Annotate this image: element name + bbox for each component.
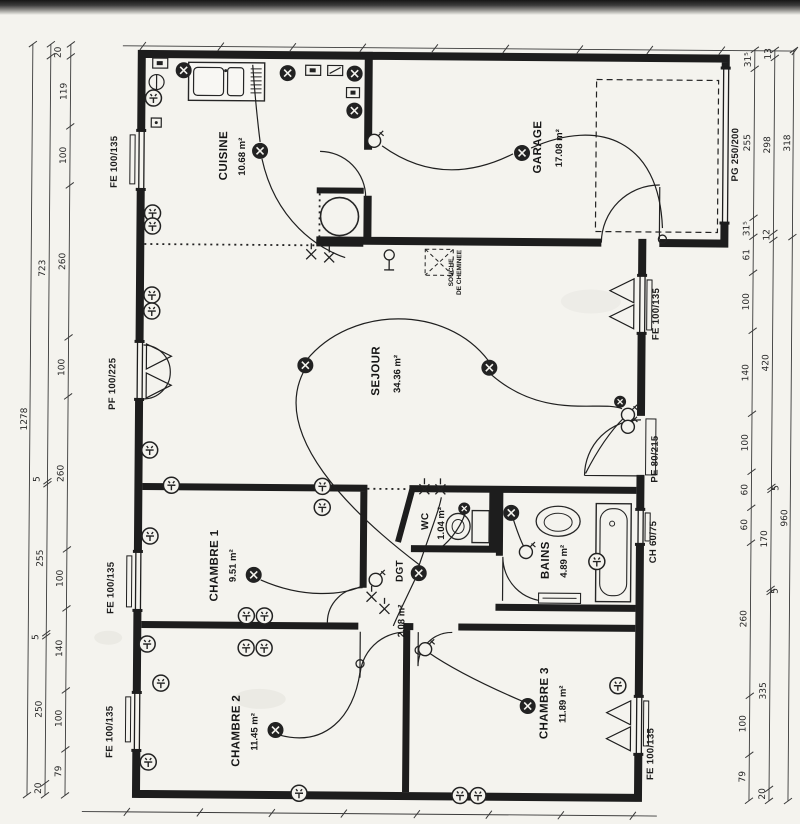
dim-label: 79	[54, 765, 64, 777]
dim-label: 100	[741, 434, 751, 452]
socket-symbol	[142, 442, 158, 458]
dim-label: 61	[742, 249, 752, 261]
chimney-label-line2: DE CHEMINEE	[456, 249, 463, 295]
door-cross-mark	[379, 598, 389, 614]
dim-label: 260	[56, 464, 66, 482]
dim-label: 298	[763, 136, 773, 154]
light-symbol	[252, 143, 268, 159]
light-symbol	[176, 62, 192, 78]
dim-label: 250	[35, 700, 45, 718]
socket-symbol	[452, 787, 468, 803]
room-name-chambre3: CHAMBRE 3	[538, 667, 551, 739]
dim-label: 100	[55, 709, 65, 727]
dim-label: 5	[771, 485, 781, 491]
room-name-cuisine: CUISINE	[218, 131, 230, 181]
window-label-left-1: FE 100/135	[109, 135, 120, 188]
room-area-wc: 1.04 m²	[436, 507, 447, 540]
drainer-grooves	[251, 69, 262, 93]
dim-label: 79	[738, 771, 748, 783]
room-name-sejour: SEJOUR	[370, 346, 382, 396]
room-labels: CUISINE 10.68 m² GARAGE 17.08 m² SEJOUR …	[207, 118, 573, 769]
water-heater	[320, 197, 358, 235]
switch-symbol	[519, 542, 535, 559]
dim-label: 255	[36, 550, 46, 567]
socket-symbol	[314, 478, 330, 494]
dim-label: 260	[739, 610, 749, 628]
light-symbol	[520, 698, 536, 714]
scan-noise	[94, 286, 621, 712]
light-symbol	[246, 567, 262, 583]
dim-label: 170	[760, 530, 770, 548]
dim-label: 60	[740, 519, 750, 531]
switch-symbol	[419, 639, 435, 656]
washbasin-inner	[544, 513, 572, 531]
window-label-left-2: PF 100/225	[107, 357, 118, 410]
socket-symbol	[144, 218, 160, 234]
socket-symbol	[238, 640, 254, 656]
door-cross-mark	[367, 586, 377, 602]
room-area-dgt: 2.08 m²	[396, 605, 407, 638]
dim-label: 13	[764, 48, 774, 60]
wall-light-symbol	[614, 396, 626, 408]
dim-label: 5	[771, 588, 781, 594]
room-area-chambre1: 9.51 m²	[228, 549, 239, 582]
dim-label: 335	[759, 682, 769, 699]
dim-label: 119	[59, 82, 69, 100]
socket-symbol	[140, 754, 156, 770]
dim-label: 20	[54, 46, 64, 58]
bathtub-drain	[610, 521, 615, 526]
window-label-right-4: FE 100/135	[645, 727, 656, 780]
socket-symbol	[144, 287, 160, 303]
shutter-boxes	[125, 135, 653, 746]
socket-symbol	[153, 675, 169, 691]
dimension-ticks-right	[745, 47, 798, 804]
socket-symbol	[610, 678, 626, 694]
light-symbol	[503, 505, 519, 521]
dim-label: 255	[743, 134, 753, 151]
socket-symbol	[589, 553, 605, 569]
electrical-wiring	[247, 65, 663, 741]
socket-symbol	[470, 788, 486, 804]
switch-symbol	[369, 570, 385, 587]
socket-symbol	[314, 499, 330, 515]
room-area-chambre2: 11.45 m²	[249, 713, 260, 751]
light-symbol	[411, 565, 427, 581]
light-symbol	[481, 360, 497, 376]
door-label-right-2: PE 80/215	[649, 435, 660, 483]
room-area-chambre3: 11.89 m²	[558, 685, 569, 723]
dim-label: 960	[780, 509, 790, 527]
floor-plan-drawing: CUISINE 10.68 m² GARAGE 17.08 m² SEJOUR …	[0, 0, 800, 824]
dim-label: 5	[32, 476, 42, 482]
light-symbol	[280, 65, 296, 81]
scanned-floor-plan-page: CUISINE 10.68 m² GARAGE 17.08 m² SEJOUR …	[0, 0, 800, 824]
chimney-label-line1: SOUCHE	[448, 258, 455, 287]
toilet-tank	[472, 511, 489, 543]
room-area-garage: 17.08 m²	[554, 129, 565, 167]
wiring-curves	[247, 65, 663, 741]
dim-label: 12	[762, 229, 772, 241]
window-label-right-3: CH 60/75	[648, 520, 659, 563]
socket-symbol	[142, 528, 158, 544]
room-name-chambre1: CHAMBRE 1	[209, 529, 222, 601]
wall-light-symbol	[458, 502, 470, 514]
dim-label: 260	[58, 252, 68, 270]
light-symbol	[347, 66, 363, 82]
wc-angled-wall	[398, 489, 412, 542]
dim-label: 31⁵	[744, 52, 754, 68]
socket-symbol	[144, 303, 160, 319]
light-symbol	[267, 722, 283, 738]
socket-symbol	[238, 608, 254, 624]
dim-label: 100	[57, 358, 67, 376]
washbasin	[536, 506, 580, 536]
dim-label: 318	[783, 134, 793, 152]
room-name-dgt: DGT	[395, 560, 406, 582]
floor-lamp-symbol	[384, 250, 394, 270]
garage-door-label: PG 250/200	[730, 128, 741, 182]
room-name-garage: GARAGE	[532, 121, 544, 174]
socket-symbol	[145, 90, 161, 106]
window-label-right-1: FE 100/135	[651, 287, 662, 340]
dim-label: 420	[761, 354, 771, 372]
room-name-wc: WC	[420, 513, 431, 530]
room-area-sejour: 34.36 m²	[392, 355, 403, 393]
socket-symbol	[256, 608, 272, 624]
dim-label: 31⁵	[742, 221, 752, 237]
faucet	[224, 69, 227, 72]
dim-label: 140	[741, 364, 751, 382]
window-label-left-4: FE 100/135	[104, 705, 115, 758]
dim-label: 723	[38, 260, 48, 277]
dim-label: 140	[55, 639, 65, 657]
dim-label: 100	[56, 569, 66, 587]
dim-label: 100	[59, 146, 69, 164]
dim-label: 20	[34, 782, 44, 794]
toilet-bowl	[446, 513, 470, 539]
socket-symbol	[291, 785, 307, 801]
room-area-bains: 4.89 m²	[559, 545, 570, 578]
light-symbol	[346, 103, 362, 119]
dim-label: 60	[740, 484, 750, 496]
dim-label: 100	[738, 715, 748, 733]
socket-symbol	[139, 636, 155, 652]
light-symbol	[514, 145, 530, 161]
socket-symbol	[256, 640, 272, 656]
window-label-left-3: FE 100/135	[105, 561, 116, 614]
dim-total-left: 1278	[20, 407, 30, 430]
dim-label: 100	[742, 293, 752, 311]
room-name-chambre2: CHAMBRE 2	[230, 695, 243, 767]
room-name-bains: BAINS	[540, 541, 552, 579]
garage-door-clearance-dashed	[595, 80, 718, 233]
dim-label: 5	[31, 634, 41, 640]
fixtures	[185, 62, 635, 603]
room-area-cuisine: 10.68 m²	[237, 138, 248, 176]
socket-symbol	[163, 477, 179, 493]
light-symbol	[297, 357, 313, 373]
dim-label: 20	[758, 788, 768, 800]
